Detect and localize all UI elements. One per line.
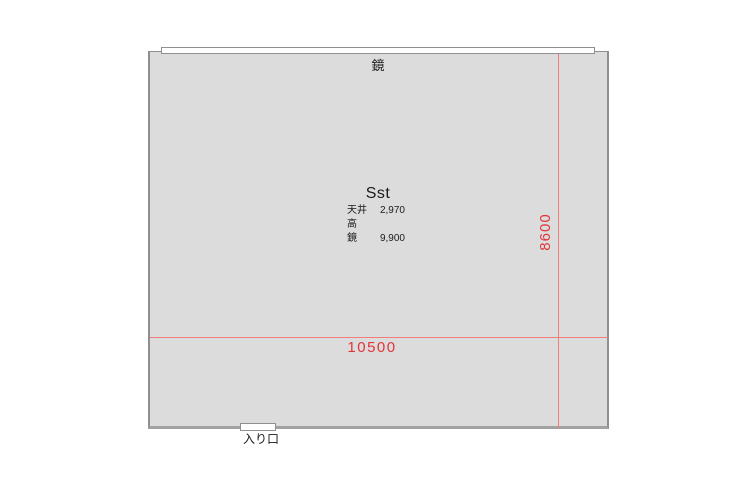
spec-value-ceiling-height: 2,970 bbox=[374, 204, 405, 232]
spec-label-ceiling-height: 天井高 bbox=[347, 204, 374, 232]
spec-label-mirror: 鏡 bbox=[347, 232, 374, 246]
mirror-strip bbox=[161, 47, 595, 54]
entrance-label: 入り口 bbox=[238, 432, 284, 447]
spec-row-ceiling-height: 天井高 2,970 bbox=[347, 204, 405, 232]
spec-value-mirror: 9,900 bbox=[374, 232, 405, 246]
room-specs: 天井高 2,970 鏡 9,900 bbox=[347, 204, 405, 246]
width-dimension-line bbox=[150, 337, 608, 338]
width-dimension-label: 10500 bbox=[310, 340, 434, 356]
room-name-label: Sst bbox=[303, 185, 453, 203]
entrance-door bbox=[240, 423, 276, 431]
floor-plan-canvas: 鏡 Sst 天井高 2,970 鏡 9,900 8600 10500 入り口 bbox=[0, 0, 750, 498]
mirror-label: 鏡 bbox=[340, 58, 416, 73]
height-dimension-label: 8600 bbox=[538, 210, 554, 254]
height-dimension-line bbox=[558, 52, 559, 428]
spec-row-mirror: 鏡 9,900 bbox=[347, 232, 405, 246]
